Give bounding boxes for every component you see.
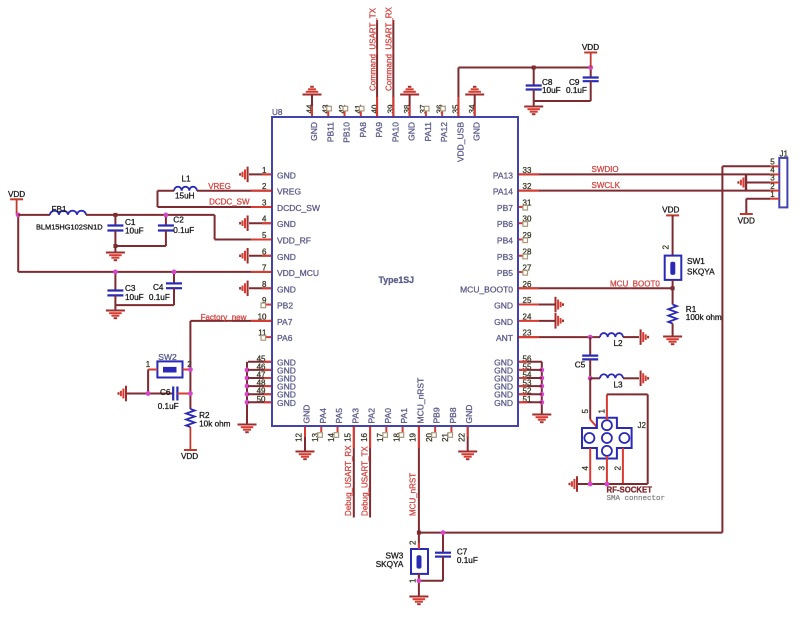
- svg-text:SKQYA: SKQYA: [376, 560, 404, 569]
- svg-text:10k ohm: 10k ohm: [199, 420, 231, 429]
- svg-text:0.1uF: 0.1uF: [173, 226, 194, 235]
- svg-text:SMA connector: SMA connector: [607, 495, 666, 503]
- svg-text:PA2: PA2: [367, 408, 377, 424]
- svg-text:PA6: PA6: [277, 333, 293, 343]
- svg-text:10uF: 10uF: [125, 227, 144, 236]
- svg-text:2: 2: [662, 245, 671, 250]
- svg-text:VREG: VREG: [208, 182, 231, 191]
- svg-text:PB9: PB9: [432, 407, 442, 423]
- svg-text:GND: GND: [494, 301, 513, 311]
- svg-text:SW1: SW1: [687, 257, 705, 266]
- svg-text:C2: C2: [173, 216, 184, 225]
- svg-text:GND: GND: [309, 122, 319, 141]
- svg-text:PB5: PB5: [497, 268, 513, 278]
- svg-text:VDD: VDD: [738, 217, 755, 226]
- svg-text:PA12: PA12: [439, 122, 449, 142]
- svg-text:Command_USART_RX: Command_USART_RX: [385, 6, 394, 91]
- svg-text:PA13: PA13: [493, 170, 513, 180]
- svg-text:PB7: PB7: [497, 203, 513, 213]
- svg-text:19: 19: [409, 432, 418, 441]
- svg-text:L2: L2: [613, 339, 623, 348]
- svg-text:SWCLK: SWCLK: [592, 181, 621, 190]
- svg-text:GND: GND: [277, 398, 296, 408]
- svg-text:1: 1: [598, 409, 607, 414]
- svg-text:VDD: VDD: [662, 205, 679, 214]
- svg-text:J2: J2: [638, 421, 647, 430]
- svg-text:Debug_USART_TX: Debug_USART_TX: [361, 446, 370, 516]
- svg-text:PB2: PB2: [277, 301, 293, 311]
- svg-text:RF-SOCKET: RF-SOCKET: [607, 486, 653, 495]
- svg-text:10uF: 10uF: [542, 86, 561, 95]
- svg-text:4: 4: [581, 466, 590, 471]
- svg-text:PA5: PA5: [334, 408, 344, 424]
- svg-text:VDD_MCU: VDD_MCU: [277, 268, 319, 278]
- svg-text:PA10: PA10: [390, 122, 400, 142]
- svg-text:PA9: PA9: [374, 122, 384, 138]
- svg-text:GND: GND: [464, 405, 474, 424]
- svg-text:DCDC_SW: DCDC_SW: [277, 203, 320, 213]
- svg-text:VDD_RF: VDD_RF: [277, 235, 311, 245]
- svg-text:1: 1: [409, 578, 418, 583]
- svg-text:VREG: VREG: [277, 187, 301, 197]
- svg-text:PA8: PA8: [358, 122, 368, 138]
- svg-text:C5: C5: [575, 361, 586, 370]
- svg-text:0.1uF: 0.1uF: [149, 293, 170, 302]
- svg-text:C1: C1: [125, 218, 136, 227]
- svg-text:PB3: PB3: [497, 252, 513, 262]
- svg-text:GND: GND: [277, 219, 296, 229]
- svg-text:GND: GND: [407, 122, 417, 141]
- svg-text:SKQYA: SKQYA: [687, 268, 715, 277]
- svg-text:BLM15HG102SN1D: BLM15HG102SN1D: [36, 223, 103, 232]
- svg-text:C3: C3: [125, 284, 136, 293]
- svg-text:Factory_new: Factory_new: [201, 313, 247, 322]
- svg-text:Command_USART_TX: Command_USART_TX: [368, 7, 377, 91]
- svg-text:12: 12: [295, 432, 304, 441]
- svg-text:PB6: PB6: [497, 219, 513, 229]
- svg-text:VDD_USB: VDD_USB: [455, 122, 465, 162]
- svg-text:MCU_BOOT0: MCU_BOOT0: [610, 280, 660, 289]
- svg-text:GND: GND: [302, 405, 312, 424]
- svg-text:0.1uF: 0.1uF: [158, 402, 179, 411]
- svg-text:15: 15: [344, 432, 353, 441]
- svg-text:3: 3: [598, 466, 607, 471]
- svg-text:5: 5: [581, 409, 590, 414]
- svg-text:2: 2: [409, 540, 418, 545]
- svg-text:PB8: PB8: [448, 407, 458, 423]
- svg-text:U8: U8: [272, 108, 283, 117]
- svg-text:1: 1: [146, 360, 151, 369]
- svg-text:L3: L3: [613, 380, 623, 389]
- svg-text:16: 16: [360, 432, 369, 441]
- svg-text:PA14: PA14: [493, 187, 513, 197]
- svg-text:FB1: FB1: [51, 205, 66, 214]
- svg-text:SWDIO: SWDIO: [592, 165, 619, 174]
- svg-text:2: 2: [614, 466, 623, 471]
- svg-text:PA1: PA1: [399, 408, 409, 424]
- svg-text:PA3: PA3: [350, 408, 360, 424]
- svg-text:PB11: PB11: [325, 122, 335, 142]
- svg-text:GND: GND: [277, 252, 296, 262]
- svg-text:10uF: 10uF: [125, 293, 144, 302]
- svg-text:PB4: PB4: [497, 235, 513, 245]
- svg-text:GND: GND: [277, 284, 296, 294]
- svg-text:1: 1: [770, 190, 775, 199]
- svg-text:R2: R2: [199, 411, 210, 420]
- svg-text:PA11: PA11: [423, 122, 433, 142]
- svg-text:GND: GND: [277, 170, 296, 180]
- svg-text:ANT: ANT: [496, 333, 513, 343]
- svg-text:PB10: PB10: [342, 122, 352, 143]
- svg-text:GND: GND: [472, 122, 482, 141]
- svg-text:15uH: 15uH: [175, 191, 195, 200]
- svg-text:Debug_USART_RX: Debug_USART_RX: [344, 445, 353, 516]
- svg-text:PA0: PA0: [383, 408, 393, 424]
- svg-text:GND: GND: [494, 398, 513, 408]
- svg-text:J1: J1: [780, 150, 789, 159]
- svg-text:PA7: PA7: [277, 317, 293, 327]
- svg-text:22: 22: [457, 432, 466, 441]
- svg-text:SW2: SW2: [158, 352, 177, 362]
- svg-text:C4: C4: [153, 283, 164, 292]
- svg-text:VDD: VDD: [8, 190, 25, 199]
- svg-text:MCU_nRST: MCU_nRST: [408, 473, 417, 516]
- svg-text:VDD: VDD: [582, 43, 599, 52]
- svg-text:0.1uF: 0.1uF: [566, 86, 587, 95]
- svg-text:0.1uF: 0.1uF: [457, 556, 478, 565]
- svg-text:VDD: VDD: [181, 452, 198, 461]
- svg-text:PA4: PA4: [318, 408, 328, 424]
- svg-text:Type1SJ: Type1SJ: [379, 275, 415, 285]
- svg-text:100k ohm: 100k ohm: [686, 313, 722, 322]
- svg-text:MCU_BOOT0: MCU_BOOT0: [460, 284, 513, 294]
- svg-text:DCDC_SW: DCDC_SW: [209, 197, 250, 206]
- svg-text:GND: GND: [494, 317, 513, 327]
- svg-text:C6: C6: [160, 388, 171, 397]
- svg-text:MCU_nRST: MCU_nRST: [415, 378, 425, 424]
- svg-text:L1: L1: [181, 175, 191, 184]
